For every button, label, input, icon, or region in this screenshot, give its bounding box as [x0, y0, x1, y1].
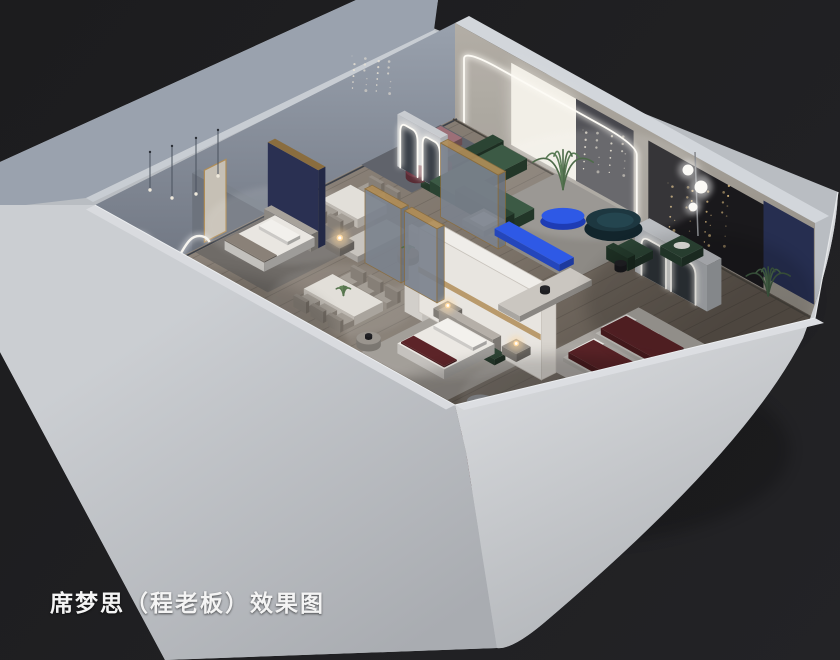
- showroom-render: 席梦思（程老板）效果图: [0, 0, 840, 660]
- gold-glass-screen: [405, 207, 445, 303]
- bench-decor-vase: [540, 285, 550, 294]
- bed3-lamp: [440, 298, 455, 313]
- round-table-2-decor: [365, 333, 372, 340]
- bed1-lamp: [331, 229, 349, 247]
- render-caption: 席梦思（程老板）效果图: [50, 584, 325, 618]
- teal-sofa-seat: [597, 213, 634, 228]
- isometric-showroom-scene: [0, 0, 840, 660]
- bed3-lamp: [509, 336, 524, 351]
- blue-oval-table: [540, 208, 585, 230]
